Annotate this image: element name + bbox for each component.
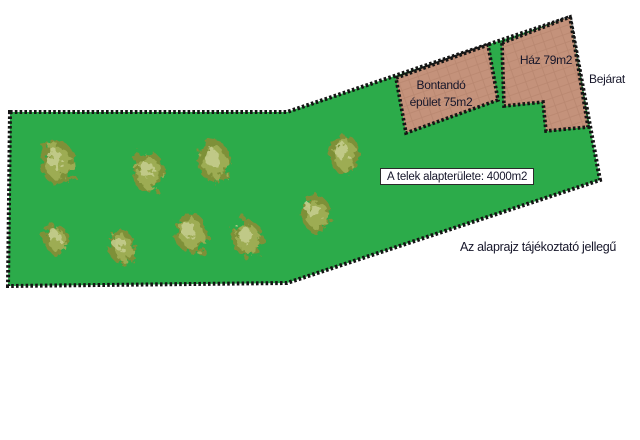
tree [329, 134, 359, 174]
tree [44, 224, 68, 254]
building-demolish-label: Bontandó épület 75m2 [393, 77, 489, 111]
tree [198, 140, 230, 182]
tree-canopy [182, 222, 195, 239]
tree [232, 219, 262, 257]
tree [40, 140, 74, 184]
disclaimer-label: Az alaprajz tájékoztató jellegű [460, 239, 616, 256]
tree [109, 230, 135, 264]
building-demolish-label-line1: Bontandó [393, 77, 489, 94]
building-house-label: Ház 79m2 [504, 52, 588, 69]
plot-area-box: A telek alapterülete: 4000m2 [380, 168, 534, 185]
tree [175, 213, 207, 253]
tree-canopy [336, 143, 349, 160]
tree [132, 151, 164, 193]
tree-canopy [308, 203, 320, 219]
tree-canopy [139, 160, 152, 178]
tree-canopy [48, 150, 62, 168]
tree-canopy [205, 149, 218, 167]
entrance-label: Bejárat [589, 71, 625, 88]
tree-canopy [49, 230, 59, 243]
tree-canopy [239, 227, 252, 243]
building-demolish-label-line2: épület 75m2 [393, 94, 489, 111]
tree-canopy [115, 237, 126, 251]
site-plan: Bontandó épület 75m2 Ház 79m2 Bejárat A … [0, 0, 640, 440]
tree [302, 195, 330, 233]
